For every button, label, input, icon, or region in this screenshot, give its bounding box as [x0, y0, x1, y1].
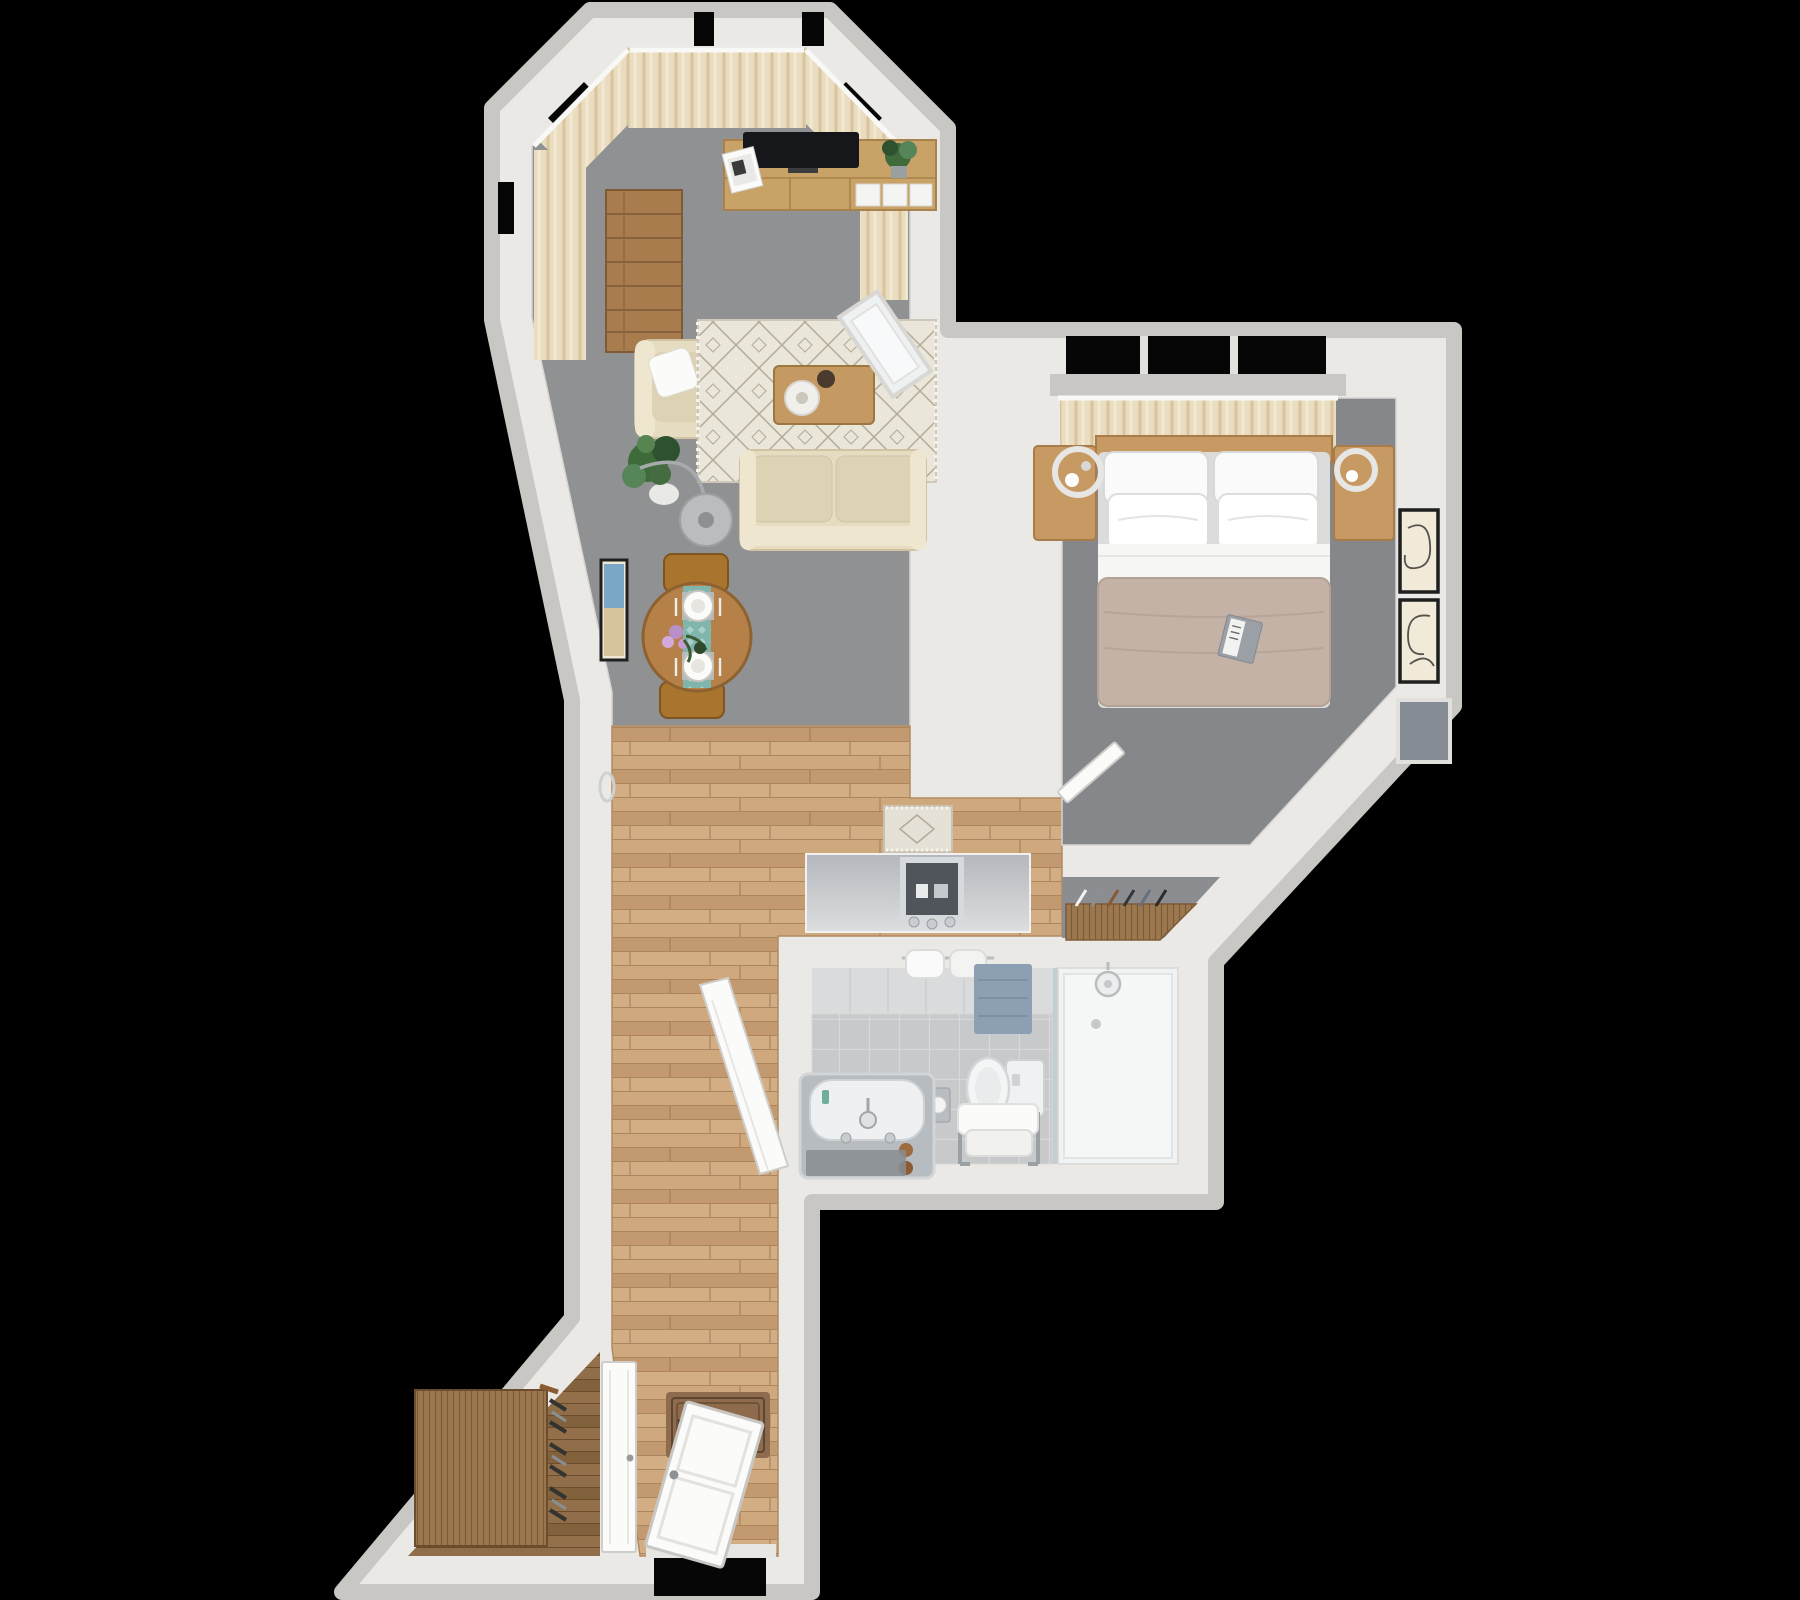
- floorplan-canvas: Welcome: [0, 0, 1800, 1600]
- bay-window-slit-2: [802, 12, 824, 46]
- towel-bench: [958, 1104, 1038, 1164]
- bedroom-gray-panel: [1398, 700, 1450, 762]
- shower: [1055, 962, 1172, 1164]
- bedroom-window-mullion-1: [1140, 336, 1148, 374]
- floorplan-3d-render: Welcome: [0, 0, 1800, 1600]
- bed-blanket: [1098, 578, 1330, 706]
- console-knob-3: [945, 917, 955, 927]
- bed: [1096, 436, 1332, 708]
- sofa: [740, 450, 926, 550]
- console-mirror: [903, 860, 961, 918]
- tv-console: [722, 132, 936, 210]
- console-knob-1: [909, 917, 919, 927]
- bathtub: [800, 1074, 934, 1178]
- nightstand-left: [1034, 446, 1101, 540]
- wall-art-hall: [601, 560, 627, 660]
- bedroom-window: [1066, 336, 1326, 374]
- curtain-left-wall: [534, 150, 586, 360]
- coffee-table: [774, 366, 874, 424]
- bowl: [817, 370, 835, 388]
- bay-window-slit-1: [694, 12, 714, 46]
- shoe-rack: [415, 1390, 547, 1546]
- left-wall-window-slit: [498, 182, 514, 234]
- bedroom-window-mullion-2: [1230, 336, 1238, 374]
- bedroom-wall-art-2: [1400, 600, 1438, 682]
- tall-shelf: [606, 190, 682, 352]
- bedroom-wall-art-1: [1400, 510, 1438, 592]
- console-knob-2: [927, 919, 937, 929]
- bedroom-window-sill: [1050, 374, 1346, 396]
- nightstand-right: [1334, 446, 1394, 540]
- storage-nook: [415, 1362, 636, 1552]
- hall-runner-rug: [884, 806, 952, 852]
- shower-drain: [1091, 1019, 1101, 1029]
- tub-faucet: [860, 1112, 876, 1128]
- tub-front-mat: [806, 1150, 906, 1176]
- storage-door: [602, 1362, 636, 1552]
- hall-console: [806, 854, 1030, 932]
- tv: [743, 132, 859, 168]
